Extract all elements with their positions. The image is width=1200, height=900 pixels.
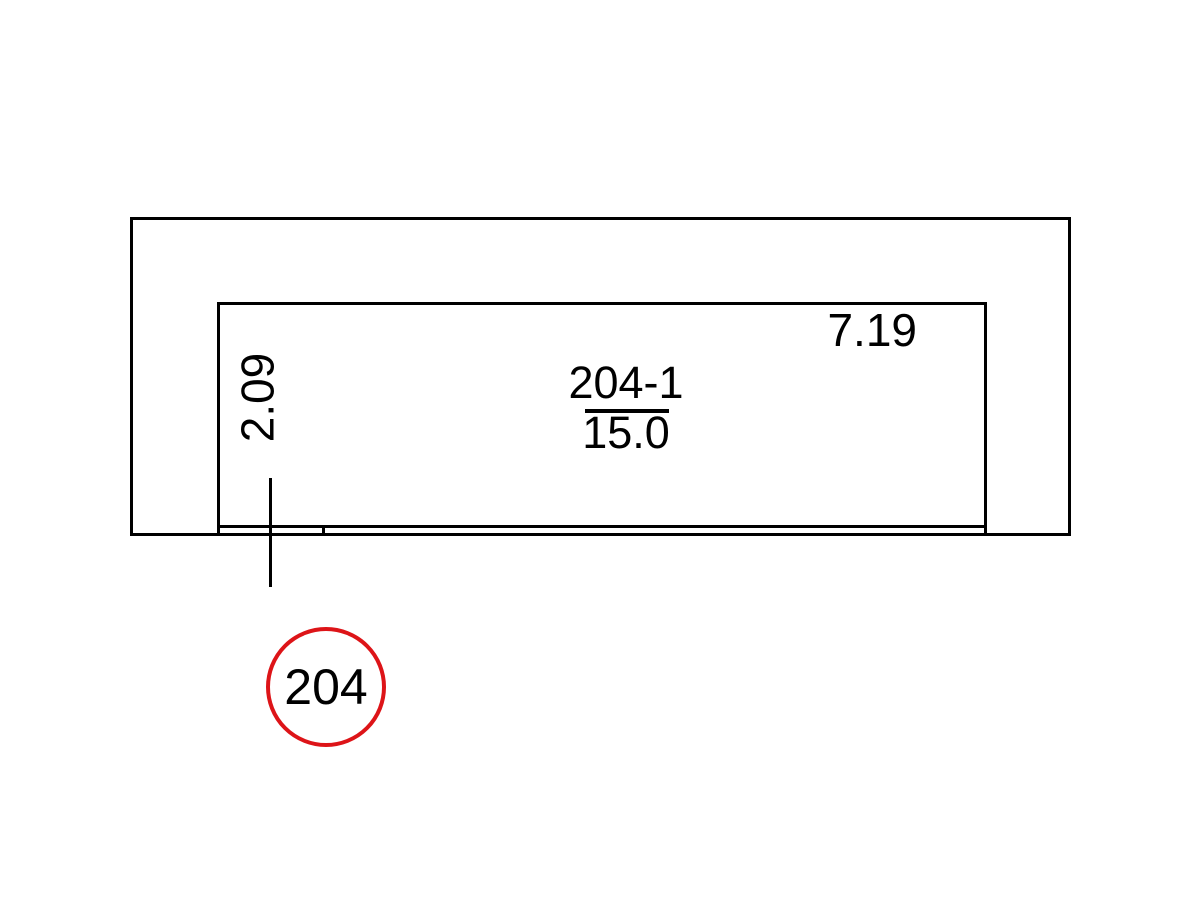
room-number-text: 204	[284, 662, 367, 712]
window-sill-line	[217, 525, 987, 528]
dimension-depth-label: 2.09	[232, 318, 285, 478]
window-sill-divider-tick	[322, 525, 325, 536]
room-id-label: 204-1	[526, 357, 726, 409]
floor-plan-canvas: 7.19 2.09 204-1 15.0 204	[0, 0, 1200, 900]
dimension-width-label: 7.19	[717, 304, 917, 357]
room-area-label: 15.0	[526, 407, 726, 459]
room-number-bubble: 204	[266, 627, 386, 747]
room-number-leader-line	[269, 478, 272, 587]
